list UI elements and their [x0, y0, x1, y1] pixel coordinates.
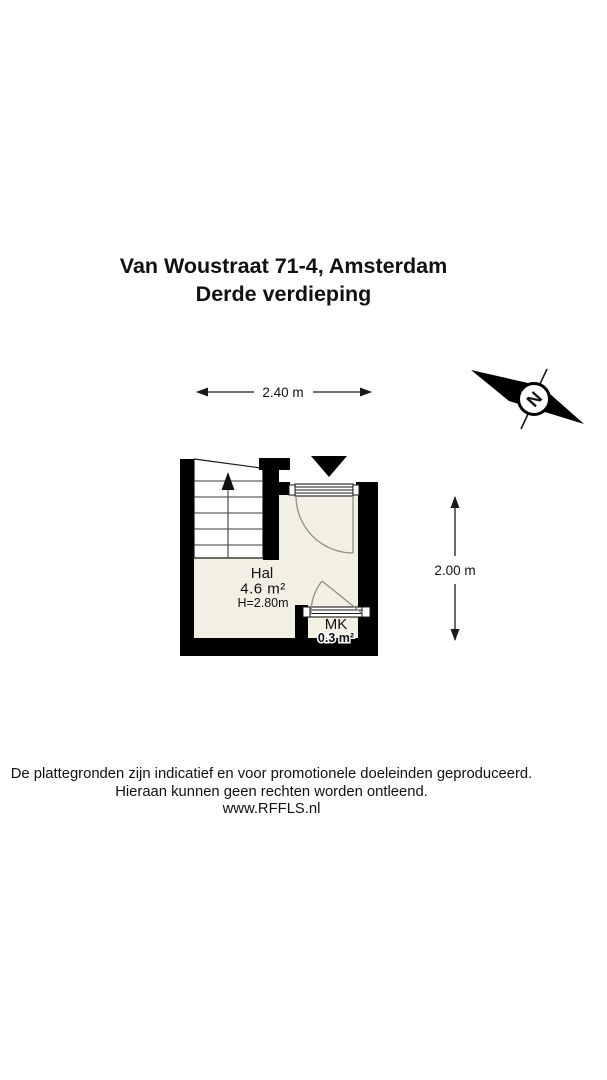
dimension-height-label: 2.00 m [434, 563, 475, 578]
mk-area-label: 0.3 m² [318, 631, 354, 645]
wall-right [358, 482, 378, 656]
hal-height-label: H=2.80m [237, 596, 288, 610]
hal-room-label: Hal [251, 565, 274, 582]
wall-door-jamb-left [263, 482, 290, 495]
disclaimer-line2: Hieraan kunnen geen rechten worden ontle… [0, 784, 543, 802]
arrow-right-icon [360, 388, 372, 397]
hal-area-label: 4.6 m² [240, 581, 286, 598]
floorplan-page: Van Woustraat 71-4, Amsterdam Derde verd… [0, 0, 607, 1080]
wall-stair-side [263, 466, 279, 560]
compass-tick-bottom [521, 414, 528, 429]
entrance-hinge-right [353, 485, 359, 495]
dimension-arrow-vertical: 2.00 m [434, 496, 475, 641]
dimension-arrow-horizontal: 2.40 m [196, 385, 372, 400]
disclaimer: De plattegronden zijn indicatief en voor… [0, 766, 543, 819]
arrow-down-icon [451, 629, 460, 641]
compass-tick-top [540, 369, 547, 384]
entrance-arrow-icon [311, 456, 347, 477]
mk-hinge-left [303, 607, 310, 617]
staircase [194, 459, 263, 558]
floor-plan-drawing: 2.40 m 2.00 m N [0, 0, 607, 1080]
dimension-width-label: 2.40 m [262, 385, 303, 400]
arrow-up-icon [451, 496, 460, 508]
north-compass-icon: N [471, 369, 584, 429]
mk-hinge-right [362, 607, 370, 617]
disclaimer-line1: De plattegronden zijn indicatief en voor… [0, 766, 543, 784]
entrance-hinge-left [289, 485, 295, 495]
website-label: www.RFFLS.nl [0, 801, 543, 819]
arrow-left-icon [196, 388, 208, 397]
wall-left [180, 459, 194, 656]
